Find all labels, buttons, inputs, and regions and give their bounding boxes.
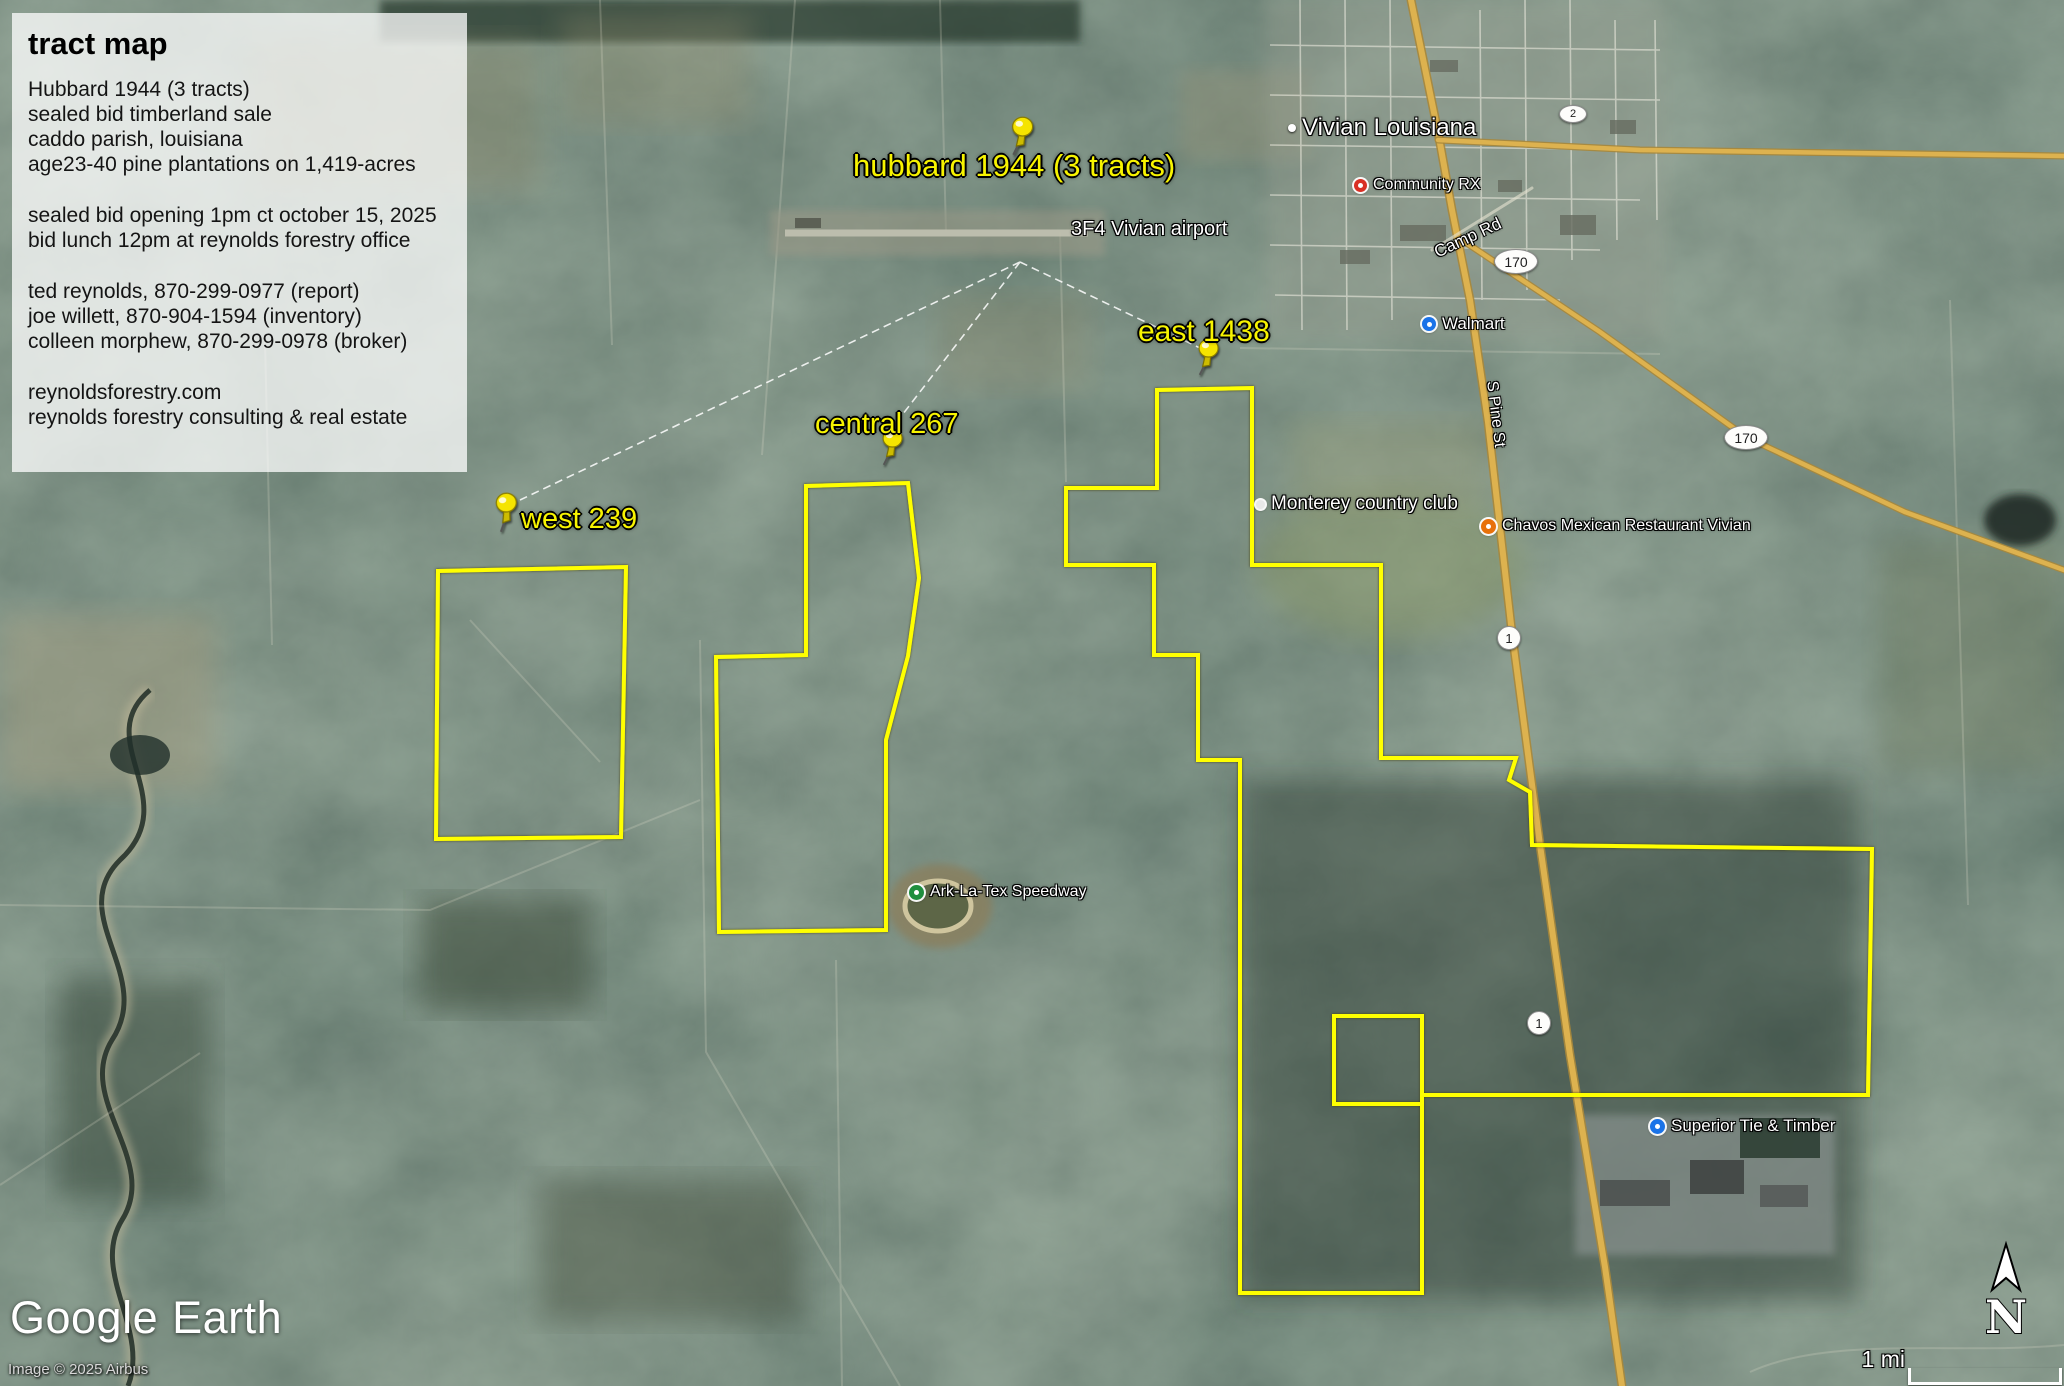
airport-label: 3F4 Vivian airport (1071, 218, 1227, 241)
pharmacy-icon (1354, 179, 1367, 192)
route-shield-1-south: 1 (1527, 1011, 1551, 1035)
timber-mill-label: Superior Tie & Timber (1650, 1116, 1835, 1136)
tract-boundary-inholding (1334, 1016, 1422, 1104)
scale-label: 1 mi (1820, 1346, 1905, 1373)
info-paragraph: Hubbard 1944 (3 tracts) sealed bid timbe… (28, 77, 453, 177)
info-paragraph: reynoldsforestry.com reynolds forestry c… (28, 380, 453, 430)
walmart-icon (1422, 317, 1436, 331)
pharmacy-label: Community RX (1354, 176, 1481, 194)
walmart-label: Walmart (1422, 314, 1505, 334)
info-paragraph: ted reynolds, 870-299-0977 (report) joe … (28, 279, 453, 354)
tract-label-east: east 1438 (1138, 315, 1270, 349)
tract-label-west: west 239 (521, 503, 637, 536)
tract-boundary-central (716, 483, 919, 932)
timber-mill-icon (1650, 1119, 1665, 1134)
info-paragraph: sealed bid opening 1pm ct october 15, 20… (28, 203, 453, 253)
google-earth-logo: GoogleEarth (10, 1292, 282, 1344)
tract-boundary-east (1066, 388, 1872, 1293)
speedway-label: Ark-La-Tex Speedway (909, 883, 1087, 901)
airport-connector-lines (520, 262, 1200, 500)
north-label: N (1984, 1290, 2028, 1344)
route-shield-2: 2 (1559, 105, 1587, 123)
tract-label-hubbard: hubbard 1944 (3 tracts) (853, 148, 1175, 184)
route-shield-1-north: 1 (1497, 626, 1521, 650)
route-shield-170-west: 170 (1494, 249, 1538, 274)
country-club-label: Monterey country club (1256, 493, 1458, 515)
country-club-icon (1256, 500, 1265, 509)
map-canvas[interactable]: hubbard 1944 (3 tracts) east 1438 centra… (0, 0, 2064, 1386)
tract-info-box: tract map Hubbard 1944 (3 tracts) sealed… (12, 13, 467, 472)
tract-label-central: central 267 (815, 408, 959, 441)
speedway-icon (909, 885, 924, 900)
info-box-title: tract map (28, 27, 453, 61)
scale-bar (1908, 1368, 2062, 1385)
city-icon (1288, 124, 1296, 132)
city-label: Vivian Louisiana (1288, 114, 1476, 142)
tract-boundary-west (436, 567, 626, 839)
imagery-copyright: Image © 2025 Airbus (8, 1361, 148, 1378)
route-shield-170-east: 170 (1724, 425, 1768, 450)
north-arrow-icon (1986, 1240, 2026, 1294)
restaurant-icon (1481, 519, 1496, 534)
restaurant-label: Chavos Mexican Restaurant Vivian (1481, 517, 1751, 535)
